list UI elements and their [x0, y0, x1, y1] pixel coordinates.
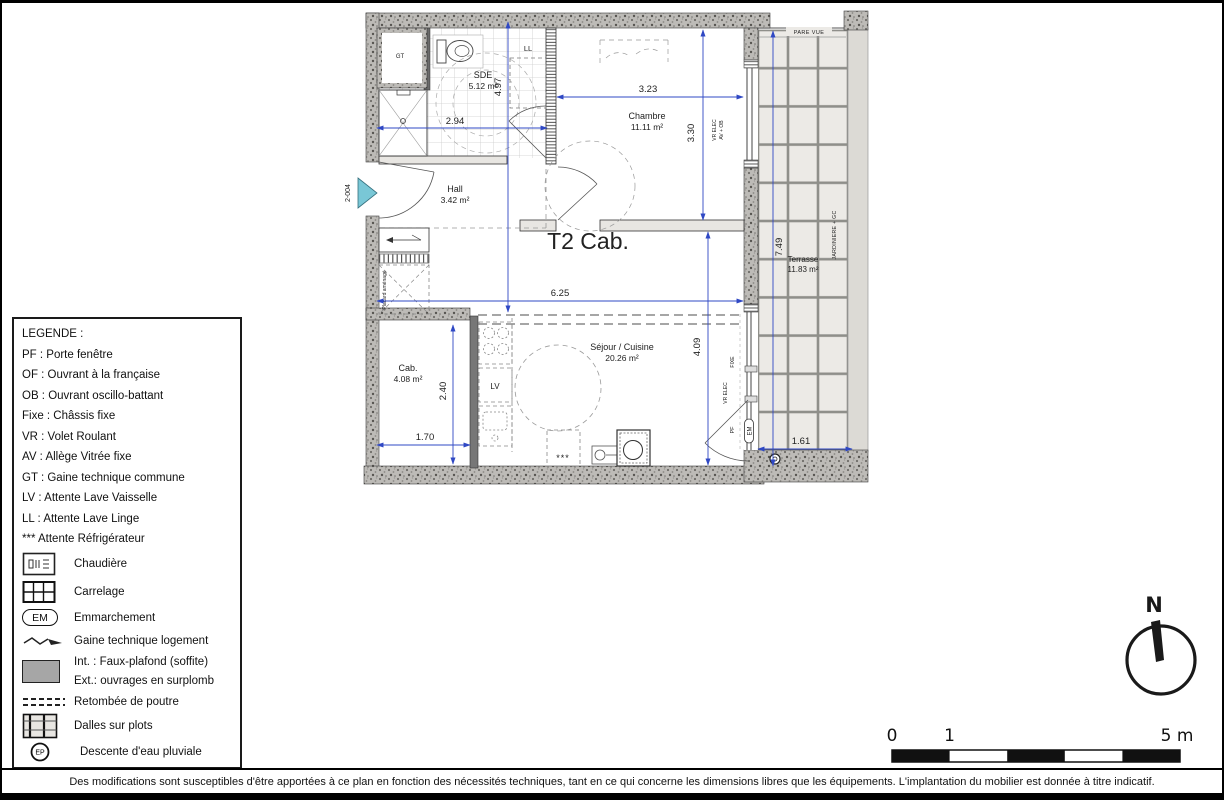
- room-sejour-area: 20.26 m²: [605, 353, 639, 363]
- dim-sde-width: 2.94: [446, 116, 465, 127]
- legend-symbol-retombee: Retombée de poutre: [22, 692, 240, 712]
- scale-segment-1: [892, 750, 950, 762]
- terrace-door-swing: [705, 400, 748, 461]
- room-sejour-name: Séjour / Cuisine: [590, 342, 654, 352]
- dim-cab-height: 2.40: [438, 382, 449, 401]
- legend-item-ll: LL : Attente Lave Linge: [22, 509, 240, 530]
- duct-legend-icon: [22, 634, 64, 648]
- em-label: EM: [748, 426, 754, 435]
- room-cab-area: 4.08 m²: [394, 374, 423, 384]
- legend-symbol-descente: EP Descente d'eau pluviale: [22, 740, 240, 764]
- shower-icon: [379, 90, 427, 156]
- dim-terrace-height: 7.49: [774, 238, 785, 257]
- legend-item-av: AV : Allège Vitrée fixe: [22, 447, 240, 468]
- dim-chambre-width: 3.23: [639, 84, 658, 95]
- placard-label: Placard aménagé: [382, 270, 388, 309]
- kitchen-counter: [479, 318, 580, 466]
- north-label: N: [1145, 593, 1163, 617]
- room-hall-area: 3.42 m²: [441, 195, 470, 205]
- downpipe-legend-icon: EP: [28, 740, 52, 764]
- overhang-legend-icon: [22, 660, 60, 683]
- north-compass: N: [1115, 588, 1207, 706]
- gt-closet: GT: [377, 28, 427, 88]
- terrace-edge-strip: [848, 28, 868, 452]
- em-legend-icon: EM: [22, 609, 58, 626]
- dim-chambre-height: 3.30: [686, 124, 697, 143]
- room-terrasse-area: 11.83 m²: [788, 265, 819, 274]
- vr-elec-sejour-label: VR ELEC: [723, 382, 729, 404]
- chambre-door-swing: [558, 167, 597, 220]
- legend-symbol-surplomb: Int. : Faux-plafond (soffite) Ext.: ouvr…: [22, 652, 240, 692]
- av-ob-label: AV + OB: [719, 120, 725, 140]
- legend-item-ob: OB : Ouvrant oscillo-battant: [22, 386, 240, 407]
- bottom-bar: [0, 793, 1224, 800]
- scale-tick-0: 0: [887, 726, 898, 746]
- legend-symbol-emmarchement: EM Emmarchement: [22, 606, 240, 630]
- tiles-legend-icon: [22, 579, 56, 605]
- scale-bar: 0 1 5 m: [880, 724, 1210, 769]
- slabs-legend-icon: [22, 713, 58, 739]
- svg-text:EP: EP: [35, 749, 45, 756]
- legend-item-gt: GT : Gaine technique commune: [22, 468, 240, 489]
- room-cab-name: Cab.: [398, 363, 417, 373]
- dim-cab-width: 1.70: [416, 432, 435, 443]
- plan-title: T2 Cab.: [547, 228, 629, 254]
- room-chambre-area: 11.11 m²: [631, 122, 663, 132]
- legend-item-fixe: Fixe : Châssis fixe: [22, 406, 240, 427]
- footer-disclaimer: Des modifications sont susceptibles d'êt…: [0, 771, 1224, 793]
- bed-icon: [545, 40, 668, 231]
- beam-dashes: [478, 315, 744, 324]
- boiler-icon: [592, 430, 650, 466]
- dim-sejour-width: 6.25: [551, 288, 570, 299]
- legend-symbol-dalles: Dalles sur plots: [22, 712, 240, 740]
- toilet-icon: [433, 35, 483, 68]
- legend-symbol-gaine: Gaine technique logement: [22, 630, 240, 652]
- table-circle: [515, 345, 601, 431]
- scale-segment-5: [1122, 750, 1180, 762]
- entrance-door-swing: [379, 162, 434, 218]
- pf-label: PF: [730, 426, 736, 434]
- room-terrasse-name: Terrasse: [788, 255, 819, 264]
- pare-vue-label: PARE VUE: [794, 30, 825, 36]
- fixe-label: FIXE: [730, 356, 736, 368]
- legend-box: LEGENDE : PF : Porte fenêtre OF : Ouvran…: [12, 317, 242, 769]
- unit-number: 2-004: [345, 184, 352, 202]
- gt-label: GT: [396, 54, 405, 60]
- jardiniere-label: JARDINIERE + GC: [832, 210, 838, 259]
- legend-item-of: OF : Ouvrant à la française: [22, 365, 240, 386]
- legend-item-pf: PF : Porte fenêtre: [22, 345, 240, 366]
- dim-terrace-width: 1.61: [792, 436, 811, 447]
- scale-tick-1: 1: [944, 726, 955, 746]
- legend-title: LEGENDE :: [22, 324, 240, 345]
- dim-sejour-height: 4.09: [692, 338, 703, 357]
- entrance-marker: 2-004: [345, 178, 377, 208]
- ll-label: LL: [524, 44, 532, 53]
- lv-label: LV: [490, 382, 500, 391]
- legend-symbol-chaudiere: Chaudière: [22, 550, 240, 578]
- em-marker: EM: [745, 419, 754, 443]
- legend-item-vr: VR : Volet Roulant: [22, 427, 240, 448]
- vr-elec-chambre-label: VR ELEC: [712, 119, 718, 141]
- room-hall-name: Hall: [447, 184, 463, 194]
- footer-separator: [0, 768, 1224, 770]
- beam-legend-icon: [22, 696, 66, 708]
- room-sde-area: 5.12 m²: [469, 81, 498, 91]
- legend-symbol-carrelage: Carrelage: [22, 578, 240, 606]
- boiler-legend-icon: [22, 551, 56, 577]
- legend-item-fridge: *** Attente Réfrigérateur: [22, 529, 240, 550]
- chambre-window: [744, 60, 758, 168]
- scale-segment-3: [1007, 750, 1065, 762]
- downpipe-icon: [770, 454, 780, 464]
- floor-plan: GT LL Placard aménagé: [330, 4, 882, 496]
- legend-item-lv: LV : Attente Lave Vaisselle: [22, 488, 240, 509]
- room-sde-name: SDE: [474, 70, 493, 80]
- fridge-label: ***: [556, 453, 570, 463]
- scale-tick-5m: 5 m: [1161, 726, 1194, 746]
- room-chambre-name: Chambre: [628, 111, 665, 121]
